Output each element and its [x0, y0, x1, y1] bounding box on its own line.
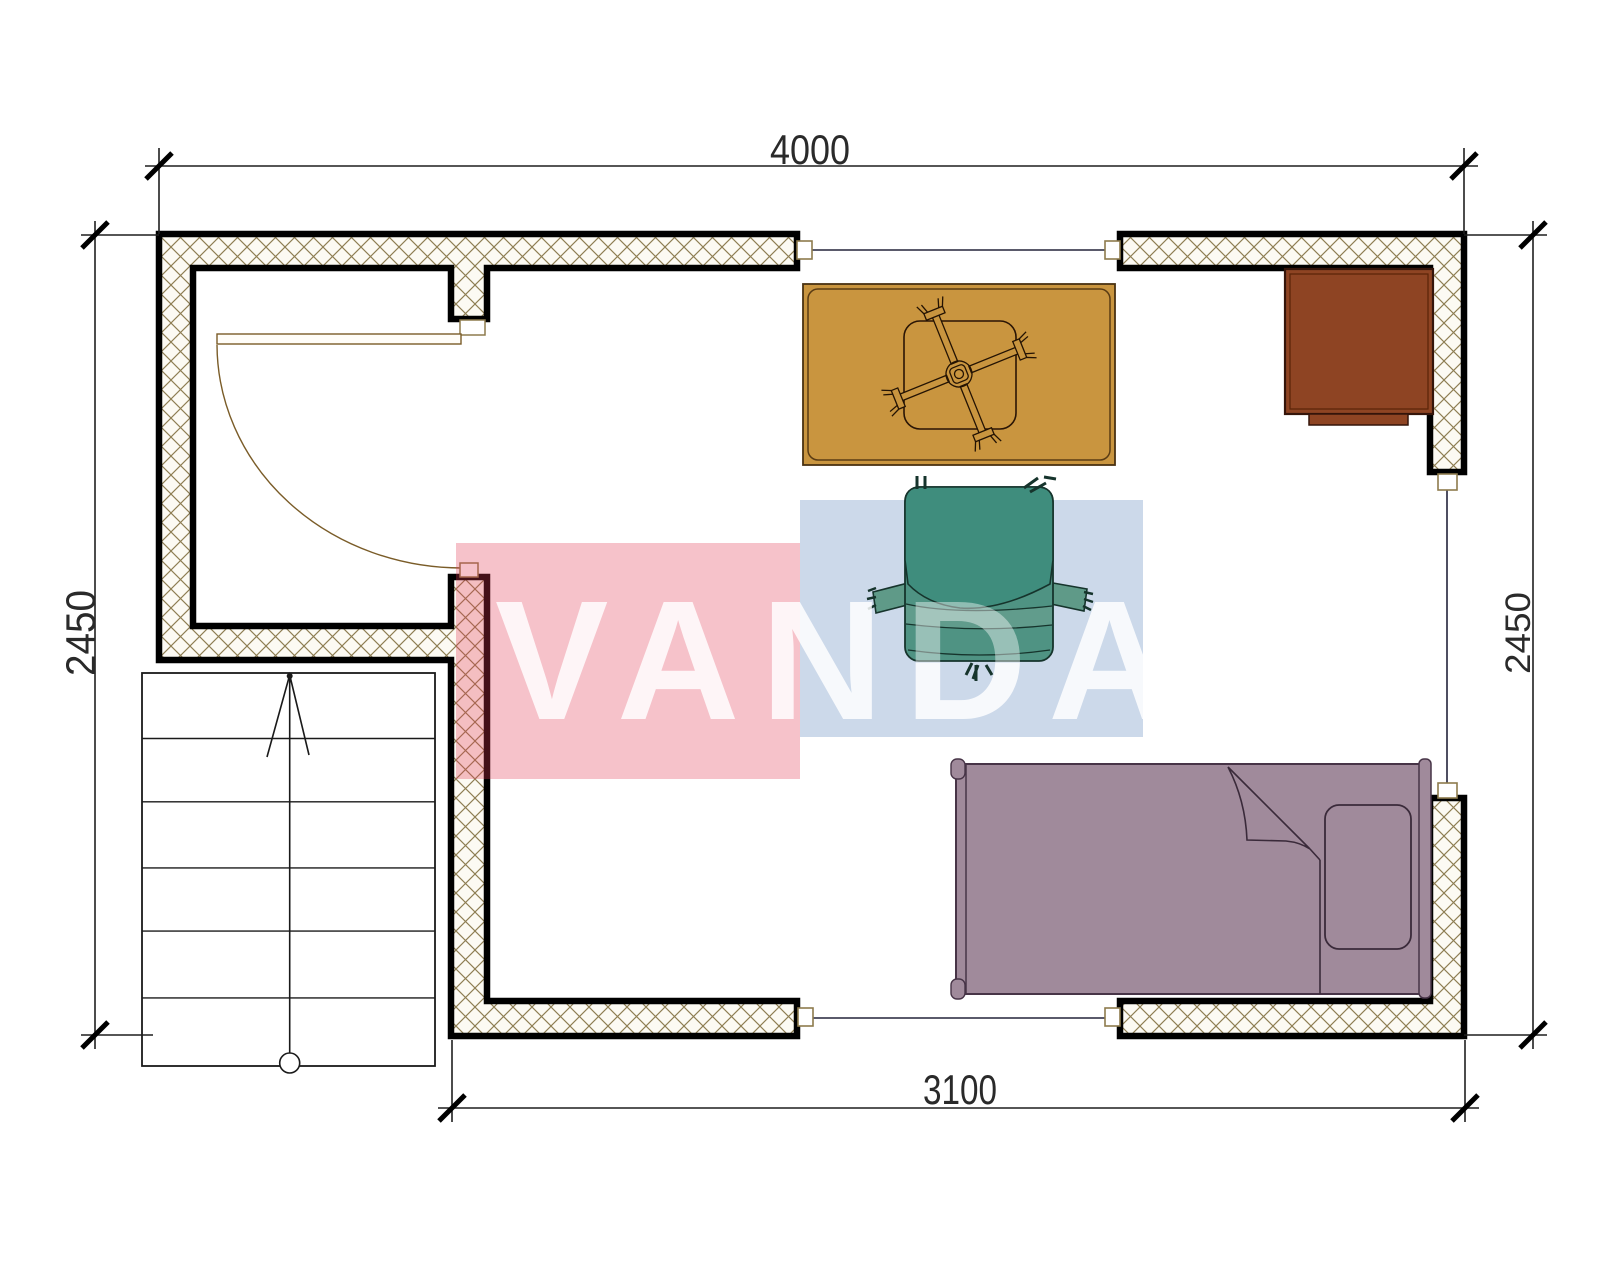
- svg-text:2450: 2450: [57, 590, 104, 676]
- svg-text:4000: 4000: [770, 126, 850, 173]
- svg-text:2450: 2450: [1499, 592, 1538, 674]
- svg-text:3100: 3100: [923, 1066, 997, 1113]
